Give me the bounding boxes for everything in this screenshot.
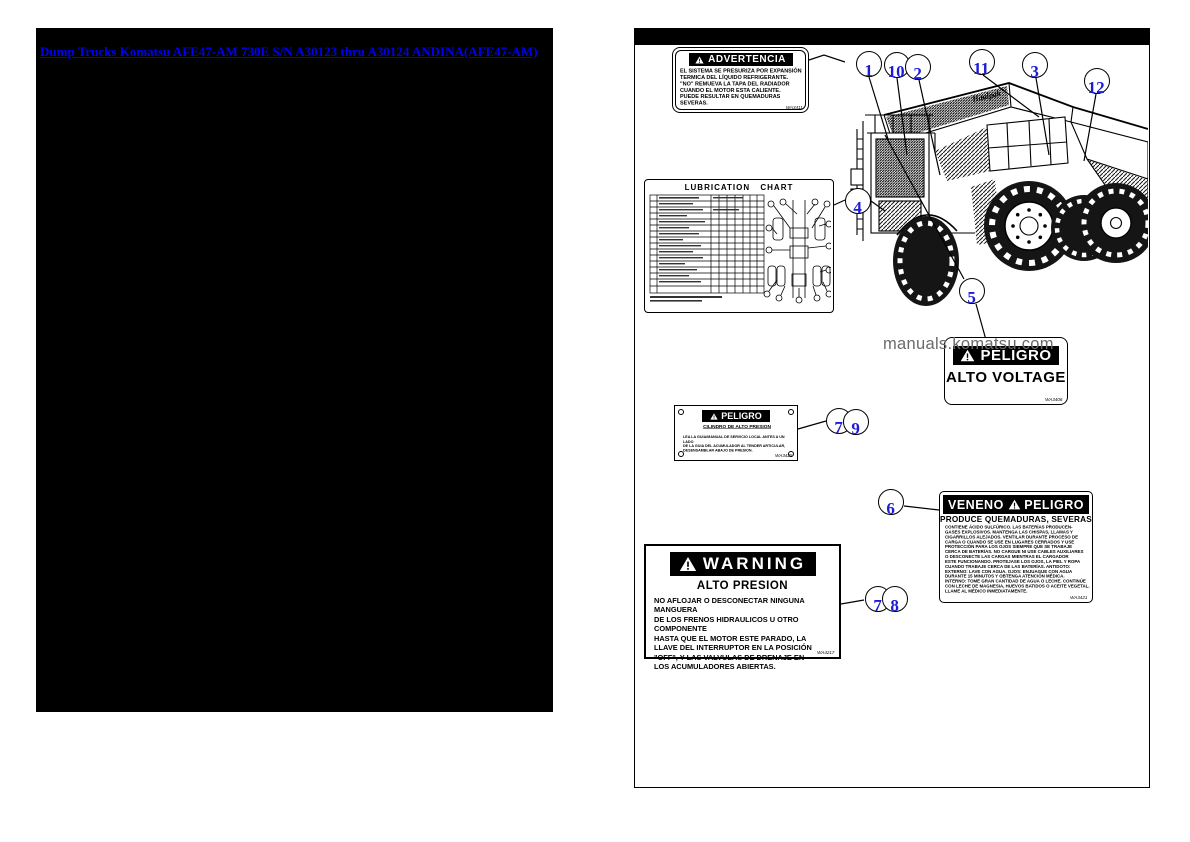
callout-number: 10 xyxy=(888,63,905,80)
callout-2: 2 xyxy=(905,54,931,80)
right-page: Haulpak ADVERTENCIA xyxy=(634,28,1150,788)
callout-number: 1 xyxy=(864,62,873,79)
callout-5: 5 xyxy=(959,278,985,304)
callout-1: 1 xyxy=(856,51,882,77)
callout-12: 12 xyxy=(1084,68,1110,94)
callout-11: 11 xyxy=(969,49,995,75)
callout-9: 9 xyxy=(843,409,869,435)
callout-number: 8 xyxy=(890,597,899,614)
callout-number: 5 xyxy=(967,289,976,306)
callout-number: 3 xyxy=(1030,63,1039,80)
callout-6: 6 xyxy=(878,489,904,515)
callout-number: 7 xyxy=(834,419,843,436)
callout-number: 11 xyxy=(973,60,989,77)
callout-8: 8 xyxy=(882,586,908,612)
callout-number: 2 xyxy=(913,65,922,82)
callout-number: 7 xyxy=(873,597,882,614)
callout-number: 4 xyxy=(853,199,862,216)
callout-number: 9 xyxy=(851,420,860,437)
watermark-text: manuals.komatsu.com xyxy=(883,335,1054,354)
callout-3: 3 xyxy=(1022,52,1048,78)
callout-4: 4 xyxy=(845,188,871,214)
callout-layer: 1102113124579678 xyxy=(635,29,1149,787)
callout-number: 12 xyxy=(1088,79,1105,96)
left-page: Dump Trucks Komatsu AFE47-AM 730E S/N A3… xyxy=(36,28,553,712)
manual-title-link[interactable]: Dump Trucks Komatsu AFE47-AM 730E S/N A3… xyxy=(40,44,538,60)
document-canvas: Dump Trucks Komatsu AFE47-AM 730E S/N A3… xyxy=(0,0,1190,842)
callout-number: 6 xyxy=(886,500,895,517)
